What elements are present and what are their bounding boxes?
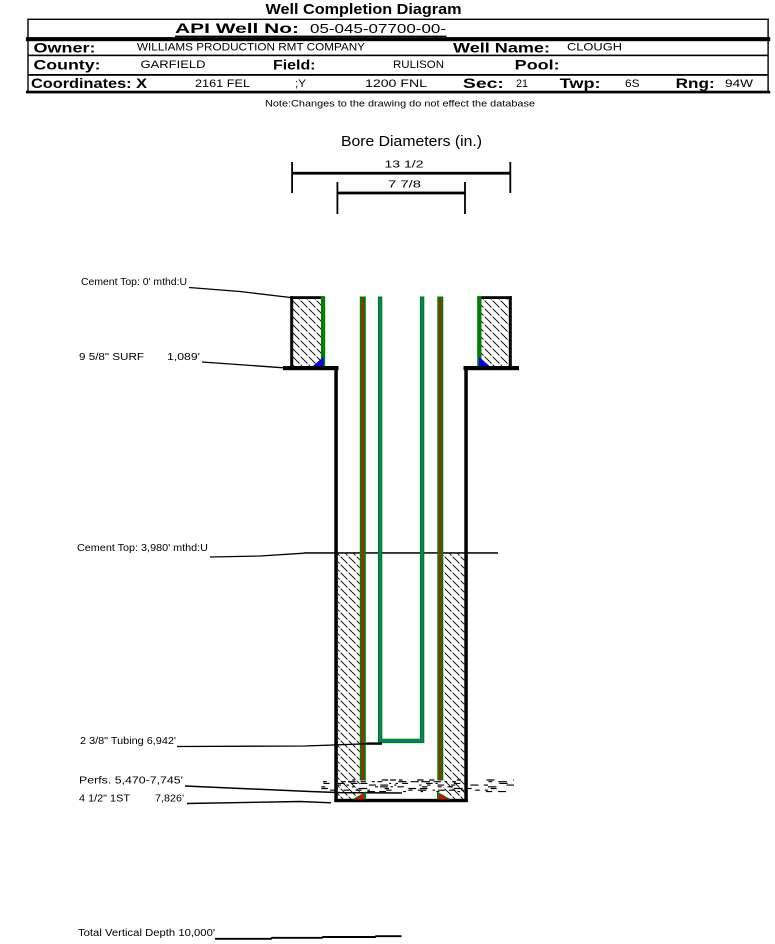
svg-text:7,826': 7,826' bbox=[155, 794, 184, 805]
svg-text:7 7/8: 7 7/8 bbox=[388, 180, 422, 191]
svg-text:Note:Changes to the drawing do: Note:Changes to the drawing do not effec… bbox=[265, 99, 535, 110]
svg-text:9 5/8" SURF: 9 5/8" SURF bbox=[79, 352, 144, 363]
svg-text:Pool:: Pool: bbox=[515, 56, 560, 72]
svg-text:1200 FNL: 1200 FNL bbox=[365, 78, 427, 90]
svg-text:WILLIAMS PRODUCTION RMT COMPAN: WILLIAMS PRODUCTION RMT COMPANY bbox=[137, 41, 366, 53]
svg-text:Field:: Field: bbox=[273, 56, 316, 72]
svg-text:Cement Top: 0' mthd:U: Cement Top: 0' mthd:U bbox=[81, 277, 187, 288]
svg-text:Well Name:: Well Name: bbox=[453, 39, 550, 55]
svg-text:RULISON: RULISON bbox=[393, 59, 444, 71]
svg-text:Sec:: Sec: bbox=[463, 75, 504, 91]
svg-text:;Y: ;Y bbox=[295, 78, 307, 90]
svg-text:6S: 6S bbox=[625, 78, 640, 90]
svg-text:Perfs. 5,470-7,745': Perfs. 5,470-7,745' bbox=[79, 776, 183, 787]
svg-text:Bore Diameters (in.): Bore Diameters (in.) bbox=[341, 134, 482, 150]
svg-text:GARFIELD: GARFIELD bbox=[141, 59, 206, 71]
svg-text:2161 FEL: 2161 FEL bbox=[195, 78, 250, 90]
svg-text:Rng:: Rng: bbox=[676, 75, 715, 91]
svg-text:Owner:: Owner: bbox=[34, 39, 96, 55]
svg-text:Twp:: Twp: bbox=[560, 75, 601, 91]
svg-text:1,089': 1,089' bbox=[167, 352, 200, 363]
svg-text:Coordinates: X: Coordinates: X bbox=[31, 75, 148, 91]
svg-text:13 1/2: 13 1/2 bbox=[385, 160, 425, 171]
svg-text:CLOUGH: CLOUGH bbox=[567, 41, 622, 53]
svg-text:21: 21 bbox=[516, 78, 528, 90]
svg-text:Well Completion Diagram: Well Completion Diagram bbox=[266, 1, 462, 18]
svg-text:2 3/8" Tubing 6,942': 2 3/8" Tubing 6,942' bbox=[80, 736, 176, 747]
svg-text:API Well No:: API Well No: bbox=[175, 20, 299, 36]
svg-text:County:: County: bbox=[34, 56, 101, 72]
svg-text:4 1/2" 1ST: 4 1/2" 1ST bbox=[79, 794, 130, 805]
svg-text:Total Vertical Depth 10,000': Total Vertical Depth 10,000' bbox=[78, 928, 215, 939]
svg-text:05-045-07700-00-: 05-045-07700-00- bbox=[310, 21, 446, 36]
svg-text:Cement Top: 3,980' mthd:U: Cement Top: 3,980' mthd:U bbox=[77, 543, 208, 554]
svg-text:94W: 94W bbox=[725, 78, 754, 90]
